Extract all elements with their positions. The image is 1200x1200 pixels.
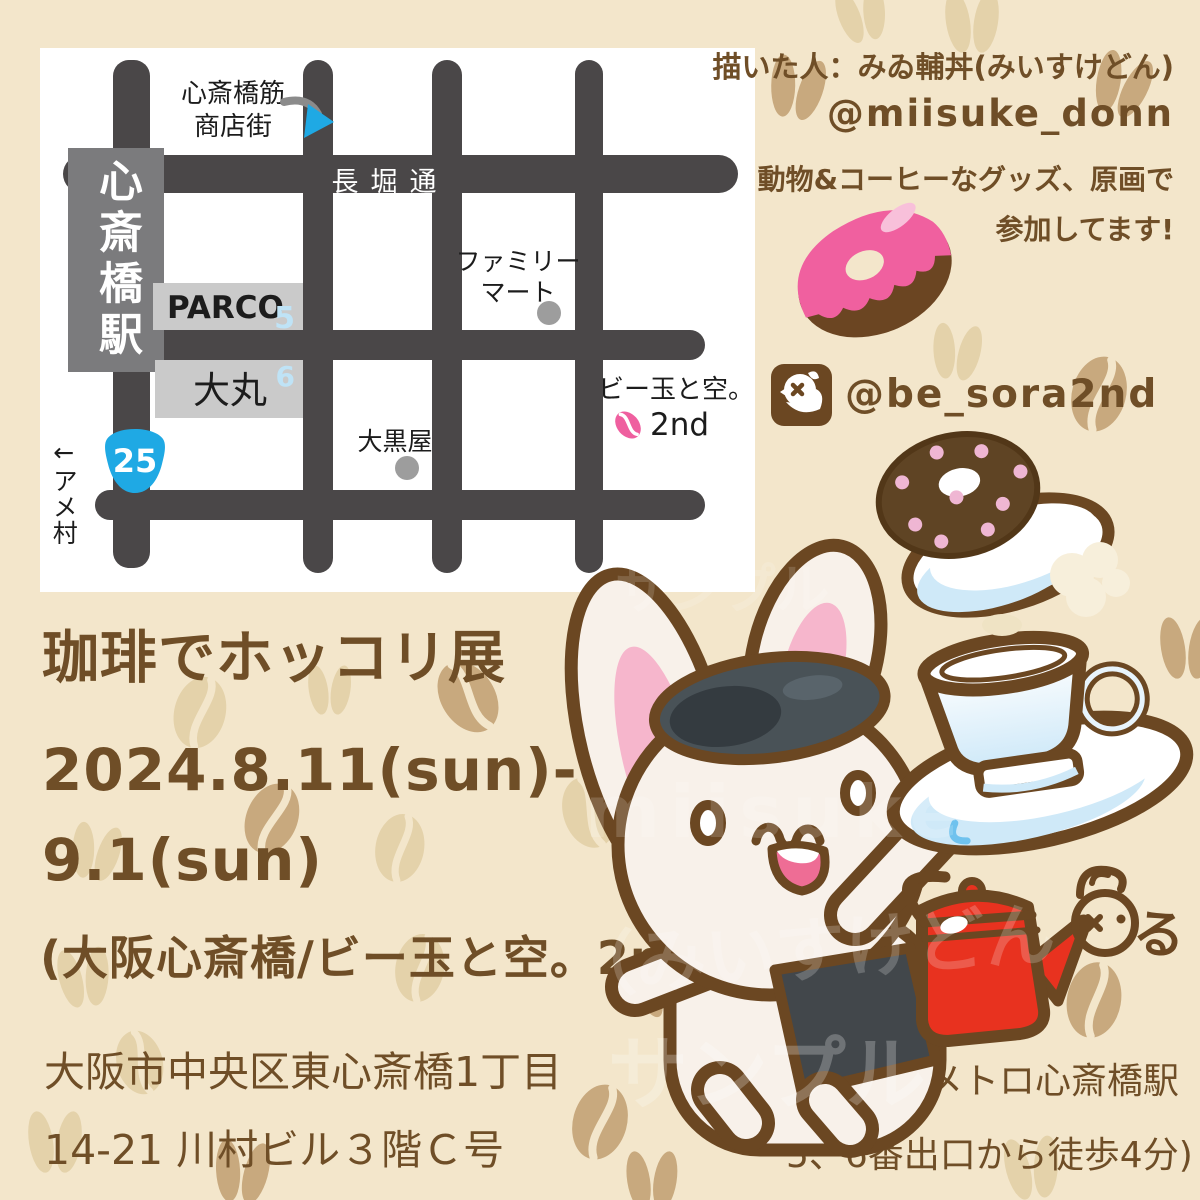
access-map: 長堀通 心斎橋駅 心斎橋筋 商店街 PARCO 5 大丸 6 ファミリー マート xyxy=(40,48,755,592)
artist-handle: @miisuke_donn xyxy=(827,92,1174,135)
map-road-middle xyxy=(120,330,705,360)
destination-label: ビー玉と空。 xyxy=(598,374,758,407)
exit-number-5: 5 xyxy=(274,301,295,336)
artist-credit-line1: 描いた人：みゐ輔丼(みいすけどん) xyxy=(712,44,1174,86)
building-daimaru: 大丸 6 xyxy=(155,360,303,418)
station-sign: 心斎橋駅 xyxy=(68,148,164,372)
landmark-familymart-dot xyxy=(537,301,561,325)
amemura-direction-label: ←アメ村 xyxy=(48,438,79,598)
bird-icon xyxy=(770,362,834,428)
artist-credit-line2: 動物&コーヒーなグッズ、原画で xyxy=(758,158,1174,198)
steam-cloud xyxy=(982,542,1130,636)
artist-signature-mark: る xyxy=(1075,870,1188,969)
building-daimaru-label: 大丸 xyxy=(193,368,267,414)
event-date-line2: 9.1(sun) xyxy=(42,826,323,894)
landmark-daikokuya-dot xyxy=(395,456,419,480)
svg-text:る: る xyxy=(1129,902,1188,968)
svg-text:25: 25 xyxy=(113,442,158,480)
artist-credit-line3: 参加してます! xyxy=(995,208,1174,248)
flyer: 長堀通 心斎橋駅 心斎橋筋 商店街 PARCO 5 大丸 6 ファミリー マート xyxy=(0,0,1200,1200)
building-parco-label: PARCO xyxy=(167,289,284,328)
destination-2nd-label: 2nd xyxy=(650,406,709,445)
shop-handle: @be_sora2nd xyxy=(845,372,1158,417)
shopping-street-arrow-icon xyxy=(278,86,338,144)
event-address-line1: 大阪市中央区東心斎橋1丁目 xyxy=(44,1038,562,1098)
landmark-daikokuya-label: 大黒屋 xyxy=(350,426,440,457)
coffee-bean-icon xyxy=(355,797,445,899)
event-title: 珈琲でホッコリ展 xyxy=(42,612,506,694)
rabbit-barista-illustration: る xyxy=(520,515,1200,1200)
event-address-line2: 14-21 川村ビル３階Ｃ号 xyxy=(44,1116,504,1176)
landmark-familymart-label: ファミリー マート xyxy=(448,246,588,309)
pink-donut-illustration xyxy=(780,198,975,358)
building-parco: PARCO 5 xyxy=(153,283,303,330)
pink-coffee-bean-icon xyxy=(610,406,646,444)
coffee-kettle xyxy=(907,876,1085,1041)
event-date-line1: 2024.8.11(sun)- xyxy=(42,736,578,804)
street-name-nagahori: 長堀通 xyxy=(290,160,490,199)
exit-number-6: 6 xyxy=(276,360,295,393)
route-25-badge: 25 xyxy=(103,426,167,496)
